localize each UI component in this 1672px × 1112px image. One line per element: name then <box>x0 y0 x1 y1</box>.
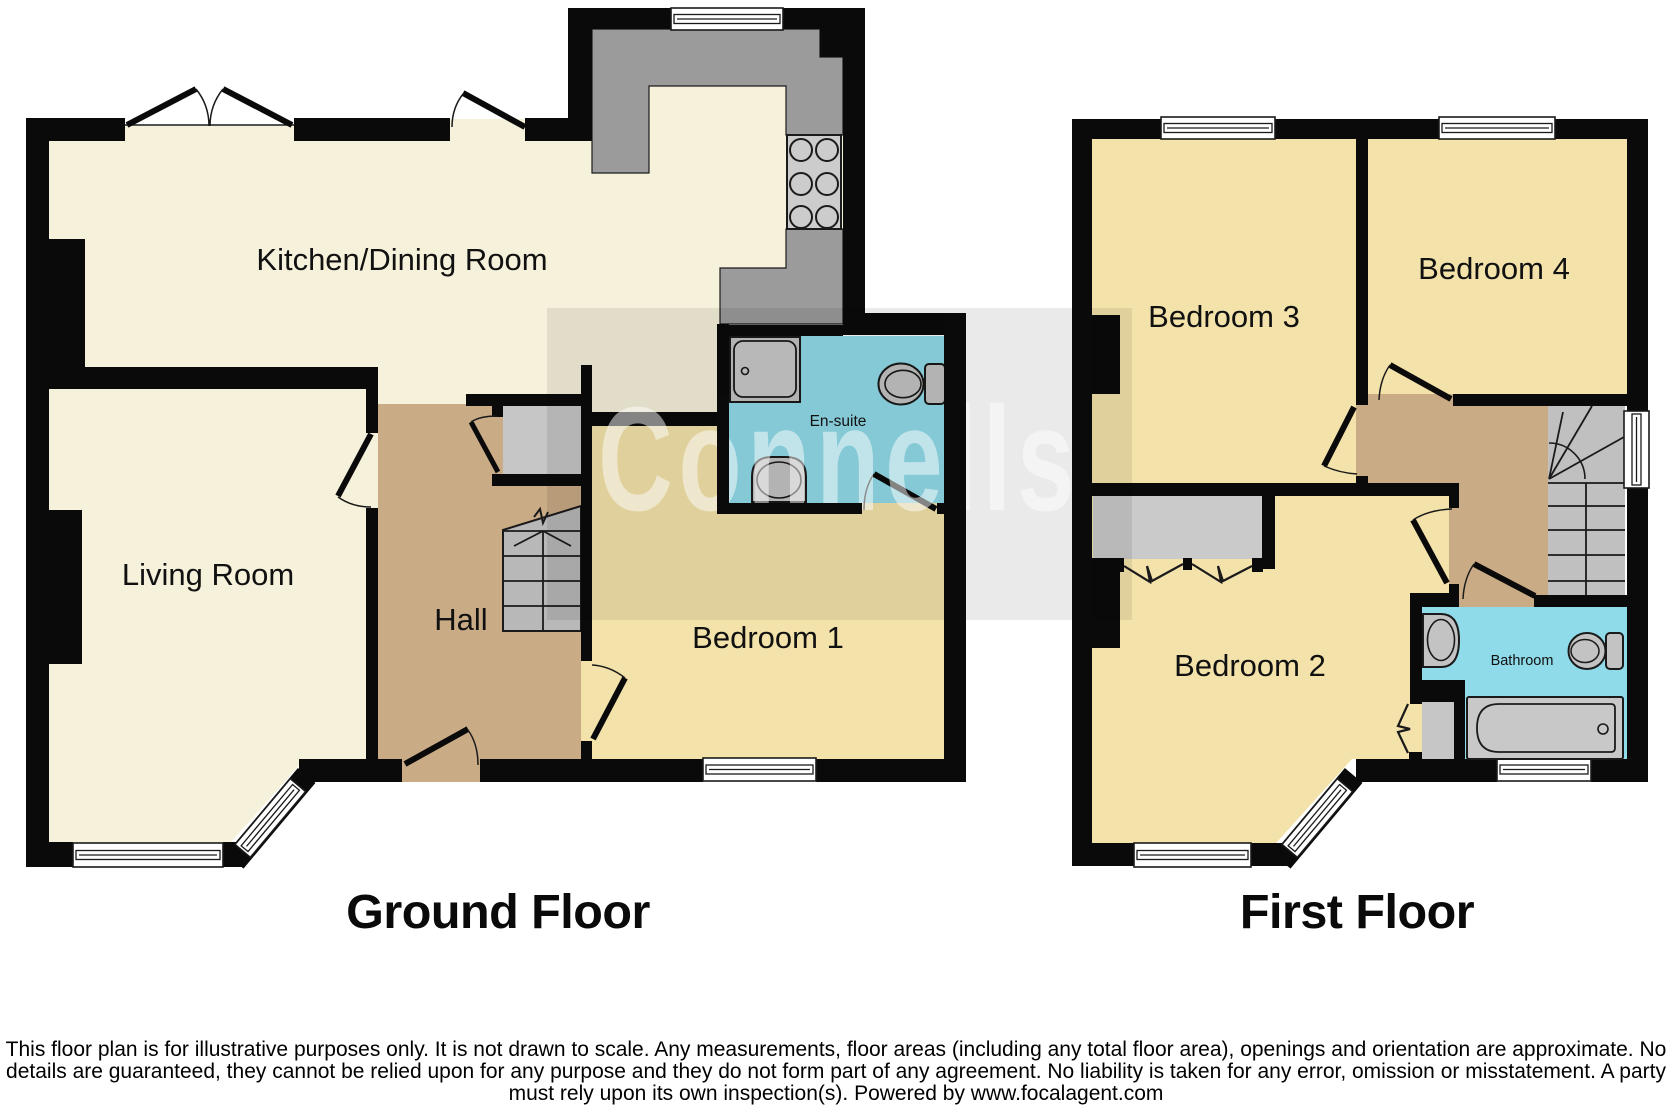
svg-text:First Floor: First Floor <box>1240 885 1475 939</box>
svg-text:Bathroom: Bathroom <box>1491 653 1554 669</box>
svg-text:Bedroom 2: Bedroom 2 <box>1174 648 1326 683</box>
svg-text:Kitchen/Dining Room: Kitchen/Dining Room <box>256 242 547 277</box>
svg-text:details are guaranteed, they c: details are guaranteed, they cannot be r… <box>6 1060 1666 1083</box>
svg-text:En-suite: En-suite <box>810 413 867 430</box>
svg-text:This floor plan is for illustr: This floor plan is for illustrative purp… <box>6 1038 1667 1061</box>
svg-text:Living Room: Living Room <box>122 557 294 592</box>
svg-text:Hall: Hall <box>434 602 487 637</box>
svg-text:Ground Floor: Ground Floor <box>346 885 650 939</box>
svg-text:Bedroom 3: Bedroom 3 <box>1148 299 1300 334</box>
svg-text:Bedroom 1: Bedroom 1 <box>692 620 844 655</box>
svg-text:Bedroom 4: Bedroom 4 <box>1418 251 1570 286</box>
svg-text:must rely upon its own inspect: must rely upon its own inspection(s). Po… <box>509 1082 1164 1105</box>
svg-text:Connells: Connells <box>598 377 1080 543</box>
